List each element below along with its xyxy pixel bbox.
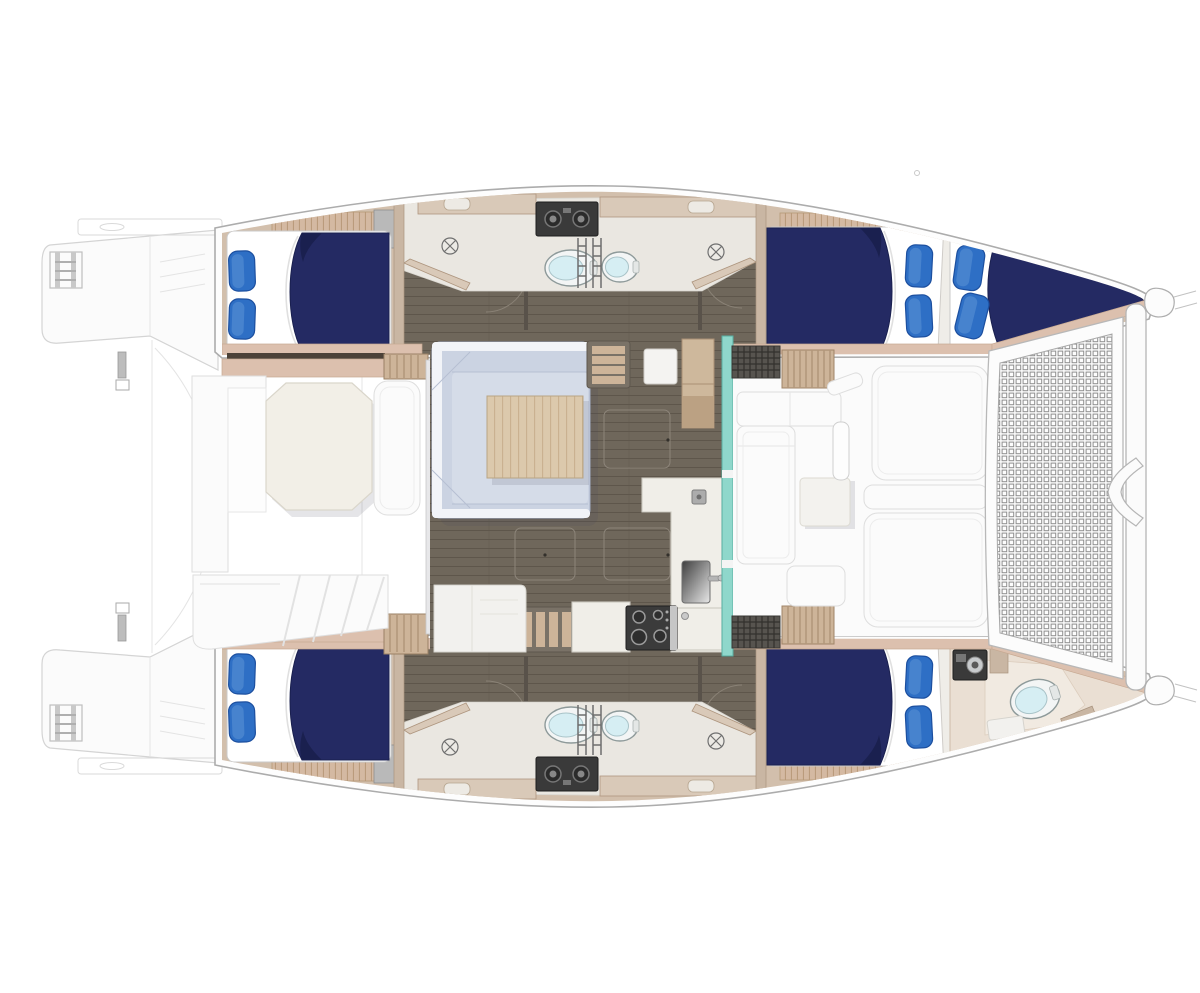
pillow bbox=[228, 654, 255, 695]
wood-cabinet bbox=[682, 339, 714, 428]
toilet-icon bbox=[545, 250, 597, 286]
forward-deck-lounge bbox=[732, 346, 992, 648]
aft-cockpit bbox=[192, 353, 434, 654]
equipment-box bbox=[953, 650, 987, 680]
equipment-knob-panel-icon bbox=[536, 202, 598, 236]
sunpad bbox=[864, 513, 988, 627]
pillow bbox=[228, 299, 255, 340]
companionway-steps-icon bbox=[384, 614, 428, 654]
cockpit-bench-left bbox=[192, 376, 266, 572]
shower-drain-icon bbox=[442, 739, 458, 755]
companionway-steps-icon bbox=[587, 341, 630, 388]
sunpads bbox=[864, 366, 988, 627]
swim-platform-port bbox=[42, 623, 218, 763]
toilet-icon bbox=[545, 707, 597, 743]
saloon-table bbox=[487, 396, 589, 485]
trampoline-net-icon bbox=[997, 334, 1112, 662]
shower-drain-icon bbox=[708, 244, 724, 260]
stove-icon bbox=[626, 606, 677, 650]
cockpit-table bbox=[266, 383, 378, 517]
pillow bbox=[905, 655, 933, 698]
foredeck-table bbox=[800, 478, 850, 526]
mast-post bbox=[833, 422, 849, 480]
pillow bbox=[905, 705, 933, 748]
deck-steps bbox=[782, 606, 834, 644]
cabinet-knob bbox=[682, 613, 689, 620]
companionway-steps-icon bbox=[384, 354, 428, 379]
bow-tip-starboard bbox=[1145, 288, 1197, 317]
davit-winch-icon bbox=[116, 352, 129, 390]
deck-grate-icon bbox=[732, 616, 780, 648]
nav-cabinet bbox=[434, 585, 526, 652]
sunpad bbox=[872, 366, 988, 480]
fridge-box bbox=[644, 349, 677, 384]
port-forward-cabin bbox=[756, 641, 958, 793]
deck-grate-icon bbox=[732, 346, 780, 378]
pillow bbox=[905, 244, 933, 287]
saloon-forward-window bbox=[722, 336, 733, 656]
pillow bbox=[952, 244, 986, 291]
sunpad bbox=[864, 485, 988, 509]
catamaran-floor-plan bbox=[0, 0, 1200, 993]
pillow bbox=[228, 251, 255, 292]
cockpit-bench-right bbox=[374, 381, 420, 515]
swim-platform-starboard bbox=[42, 230, 218, 370]
starboard-forward-cabin bbox=[756, 200, 958, 352]
pillow bbox=[905, 294, 933, 337]
bow-trampoline bbox=[985, 317, 1123, 679]
saloon bbox=[430, 330, 733, 656]
bed-duvet bbox=[767, 228, 892, 351]
equipment-knob-panel-icon bbox=[536, 757, 598, 791]
bow-tip-port bbox=[1145, 676, 1197, 705]
toilet-icon bbox=[602, 252, 639, 282]
toilet-icon bbox=[602, 711, 639, 741]
deck-steps bbox=[782, 350, 834, 388]
cockpit-forward-band bbox=[222, 359, 385, 377]
bed-duvet bbox=[767, 642, 892, 765]
floor-plan-canvas bbox=[0, 0, 1200, 993]
davit-winch-icon bbox=[116, 603, 129, 641]
shower-drain-icon bbox=[708, 733, 724, 749]
shower-drain-icon bbox=[442, 238, 458, 254]
pillow bbox=[228, 702, 255, 743]
